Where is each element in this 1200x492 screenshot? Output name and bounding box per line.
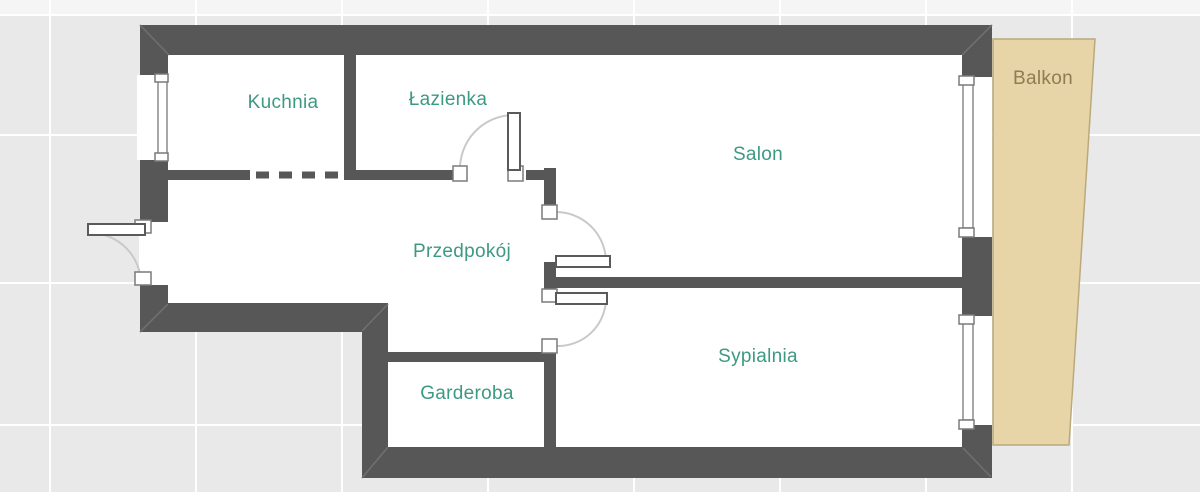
- room-label-balkon: Balkon: [1013, 68, 1073, 90]
- window-sypialnia: [959, 315, 992, 429]
- room-label-garderoba: Garderoba: [420, 383, 514, 405]
- room-label-sypialnia: Sypialnia: [718, 346, 798, 368]
- wall-central-a: [544, 168, 556, 210]
- wall-left: [140, 25, 168, 332]
- room-label-salon: Salon: [733, 144, 783, 166]
- wall-bottom: [362, 447, 992, 478]
- window-salon: [959, 76, 992, 237]
- wall-bath-bottom-a: [344, 170, 458, 180]
- room-label-przedpokoj: Przedpokój: [413, 241, 511, 263]
- room-label-kuchnia: Kuchnia: [248, 92, 319, 114]
- wall-garderoba-top: [388, 352, 544, 362]
- floor-plan: Kuchnia Łazienka Salon Przedpokój Garder…: [0, 0, 1200, 492]
- wall-central-c: [544, 345, 556, 447]
- balcony-area: [993, 39, 1095, 445]
- wall-top: [140, 25, 992, 55]
- window-kitchen: [137, 74, 170, 161]
- wall-kitchen-bottom: [168, 170, 250, 180]
- wall-bath-bottom-b: [525, 170, 544, 180]
- room-label-lazienka: Łazienka: [409, 89, 487, 111]
- door-entrance: [88, 220, 169, 285]
- wall-kitchen-bath: [344, 55, 356, 180]
- wall-step: [140, 303, 388, 332]
- wall-salon-sypialnia: [556, 277, 962, 288]
